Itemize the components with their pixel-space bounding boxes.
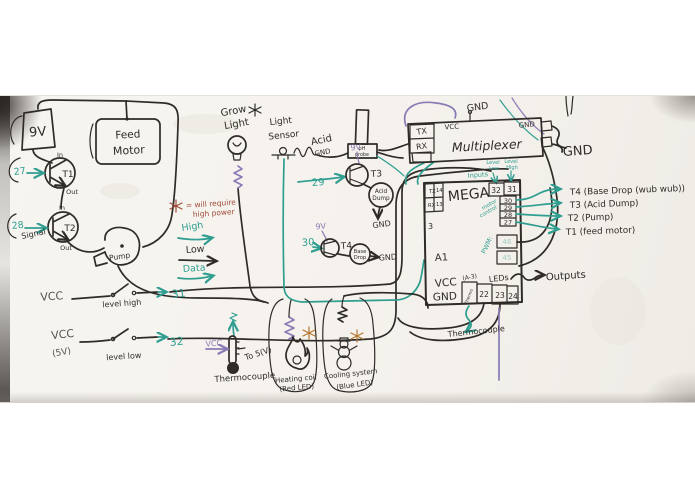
switch-high-wire-r — [137, 292, 158, 293]
key-t1: T1 (feed motor) — [565, 226, 636, 238]
t3-symbol — [350, 166, 364, 184]
switch-high-throw — [132, 291, 135, 294]
mega-leds-label: LEDs — [488, 273, 509, 284]
acid-dump-circle — [369, 183, 393, 207]
heating-wire-up — [289, 300, 291, 317]
transistor-t1: T1 In Out 27 — [13, 151, 78, 196]
t2-signal-label: Signal — [21, 227, 47, 241]
t3-9v-label: 9V — [350, 142, 362, 152]
mega-pin-27: 27 — [504, 219, 512, 227]
resistor-purple-heating — [285, 317, 294, 339]
photo-edge-left — [0, 96, 10, 402]
mega-pin-24: 24 — [508, 292, 518, 301]
outputs-label: Outputs — [546, 270, 587, 284]
photo-corner-top-right — [649, 96, 695, 124]
bulb-base — [233, 143, 241, 160]
thermo-vcc-label: VCC — [205, 338, 223, 348]
thermo-signal-arrow — [233, 323, 234, 336]
t1-in-label: In — [57, 151, 63, 159]
mega-pin-22: 22 — [479, 290, 489, 299]
mega-vcc: VCC — [434, 276, 457, 290]
legend-high: High — [181, 220, 204, 234]
legend-low: Low — [185, 244, 205, 256]
mega-pin-32: 32 — [491, 186, 501, 195]
snowman-base — [337, 356, 351, 370]
switch-low-wire-r — [137, 337, 158, 338]
thermometer-bulb — [227, 362, 239, 374]
switch-low-pin: 32 — [169, 335, 184, 349]
switch-low-lever — [113, 329, 128, 339]
photo-edge-bottom — [0, 392, 695, 402]
t1-label: T1 — [61, 170, 73, 180]
legend-low-arrow — [179, 260, 215, 261]
flame-core — [293, 356, 301, 364]
mega-pwm-pin-46: 46 — [503, 238, 512, 246]
acid-dump-label-2: Dump — [372, 196, 390, 202]
switch-low-vcc: VCC — [51, 327, 75, 342]
legend-note-2: high power — [193, 207, 236, 219]
switch-high-pin: 31 — [171, 287, 186, 301]
base-drop-gnd: GND — [378, 252, 397, 262]
t4-9v-label: 9V — [315, 221, 327, 231]
thermocouple: VCC To 5(V) Thermocouple — [205, 313, 275, 385]
wire-growlight-down — [238, 188, 264, 302]
feed-motor-label-1: Feed — [115, 128, 141, 141]
legend-data-arrow — [178, 276, 212, 279]
mega-inputs-label: Inputs — [467, 170, 488, 180]
key-wire-t4 — [516, 189, 559, 200]
pump-label: Pump — [109, 251, 131, 263]
thermometer-tube — [229, 336, 236, 364]
wire-9v-to-top — [38, 100, 126, 109]
resistor-purple-growlight — [234, 166, 242, 188]
switch-high-wire-l — [72, 296, 110, 299]
cooling-system: Cooling system (Blue LED) — [323, 296, 378, 392]
feed-motor-brace — [90, 124, 93, 158]
switch-low-vcc-sub: (5V) — [51, 346, 71, 359]
wire-topright-pair — [566, 96, 573, 116]
switch-high-lever — [113, 284, 128, 295]
t1-out-label: Out — [66, 188, 78, 196]
legend-data: Data — [182, 262, 205, 275]
probe-stem — [355, 110, 368, 144]
heating-star-icon — [303, 327, 315, 339]
mega-pin-31: 31 — [507, 185, 517, 194]
multiplexer: TX RX VCC GND Multiplexer GND GND — [408, 101, 593, 163]
key-wire-t2 — [516, 214, 559, 216]
feed-motor-box — [96, 119, 160, 164]
mega-tx-pin: 14 — [436, 188, 443, 194]
light-sensor-label-2: Sensor — [268, 129, 300, 142]
t2-in-label: In — [59, 204, 65, 212]
t4-to-load — [338, 254, 349, 256]
transistor-t2: T2 In Out 28 Signal — [11, 204, 78, 252]
heating-coil: Heating coil (Red LED) — [269, 299, 317, 394]
bulb-icon — [228, 136, 246, 154]
multiplexer-title: Multiplexer — [451, 136, 522, 155]
thermo-signal-glyph — [230, 313, 237, 321]
key-t2: T2 (Pump) — [567, 212, 614, 224]
switch-low-throw — [132, 336, 135, 339]
mega-title: MEGA — [447, 185, 490, 205]
mega-tx: TX — [428, 189, 436, 195]
mega-pwm-pin-45: 45 — [503, 254, 512, 262]
probe-wire-right — [377, 152, 403, 158]
acid-label: Acid — [310, 133, 333, 148]
base-drop-gnd-arrow — [370, 256, 377, 257]
light-sensor-dome — [280, 148, 287, 155]
level-switch-low: VCC (5V) level low 32 — [51, 327, 185, 362]
multiplexer-gnd: GND — [518, 120, 535, 130]
mega-pin-23: 23 — [495, 291, 505, 300]
feed-motor: Feed Motor — [90, 119, 160, 164]
t3-circle — [346, 164, 368, 186]
mega-a3-label: (A-3) — [462, 273, 478, 282]
grow-light: Grow Light — [220, 104, 261, 188]
snowman-icon — [331, 338, 357, 370]
key-t3: T3 (Acid Dump) — [569, 199, 639, 211]
t3-label: T3 — [370, 169, 383, 180]
mega-rx: RX — [428, 203, 436, 209]
wire-t2-to-pump — [68, 242, 104, 252]
multiplexer-top-gnd: GND — [466, 101, 489, 115]
level-switch-high: VCC level high 31 — [40, 284, 186, 309]
switch-high-label: level high — [102, 298, 142, 310]
resistor-cooling — [338, 307, 347, 322]
acid-dump-label-1: Acid — [375, 189, 388, 195]
light-sensor-label-1: Light — [269, 116, 293, 128]
t4-pin-arrow — [313, 247, 320, 248]
mega-a1: A1 — [435, 252, 449, 264]
feed-motor-label-2: Motor — [113, 143, 146, 158]
mega-level-low-2: Low — [489, 166, 499, 172]
multiplexer-tx: TX — [415, 126, 428, 137]
wire-top-to-feedmotor — [126, 101, 127, 119]
mega: TX 14 RX 13 MEGA Inputs Level Low Level … — [424, 159, 586, 339]
t1-pin-label: 27 — [13, 166, 26, 178]
wire-loop-right — [126, 101, 178, 247]
thermo-right-label: To 5(V) — [243, 345, 273, 362]
mega-pwm-label: PWM: — [480, 235, 495, 255]
key-wire-t1 — [516, 222, 557, 229]
pump-dot — [120, 244, 124, 248]
legend: = will require high power High Low Data — [170, 197, 237, 278]
switch-high-vcc: VCC — [40, 289, 64, 304]
t3-to-load — [363, 184, 371, 188]
base-drop-label-2: Drop — [354, 255, 367, 261]
pump: Pump — [94, 228, 139, 267]
t2-pin-label: 28 — [11, 220, 24, 232]
whiteboard-photo: 9V Feed Motor T1 In Out 27 T2 In Out 28 … — [0, 95, 695, 403]
acid-dump-gnd-arrow — [378, 207, 380, 217]
mega-rx-pin: 13 — [436, 202, 443, 208]
switch-low-wire-l — [80, 340, 110, 342]
t2-out-label: Out — [60, 244, 72, 252]
light-sensor: Light Sensor — [268, 116, 300, 159]
outputs-squiggle-arrow — [511, 274, 543, 280]
switch-low-label: level low — [106, 351, 142, 362]
t3-circuit: 9V 29 T3 Acid Dump GND — [298, 142, 393, 230]
wiring-diagram: 9V Feed Motor T1 In Out 27 T2 In Out 28 … — [0, 96, 695, 402]
t2-label: T2 — [63, 224, 75, 234]
wire-mux-to-probe — [379, 144, 408, 151]
cooling-caption-2: (Blue LED) — [336, 378, 374, 391]
mega-pin-3: 3 — [428, 222, 433, 231]
transistor-key: T4 (Base Drop (wub wub)) T3 (Acid Dump) … — [516, 184, 685, 238]
multiplexer-rx: RX — [416, 141, 429, 152]
multiplexer-right-gnd: GND — [562, 143, 593, 160]
smudge — [590, 277, 646, 345]
acid-dump-gnd: GND — [372, 219, 391, 230]
legend-high-arrow — [178, 238, 211, 240]
thermocouple-caption: Thermocouple — [213, 371, 275, 385]
mega-gnd: GND — [433, 290, 458, 303]
key-t4: T4 (Base Drop (wub wub)) — [569, 184, 685, 198]
smudge — [100, 183, 140, 199]
multiplexer-vcc: VCC — [444, 122, 459, 131]
grow-light-star-icon — [249, 104, 261, 116]
t4-symbol — [324, 241, 336, 255]
page-background: 9V Feed Motor T1 In Out 27 T2 In Out 28 … — [0, 0, 695, 494]
mega-level-high-2: High — [506, 165, 518, 171]
